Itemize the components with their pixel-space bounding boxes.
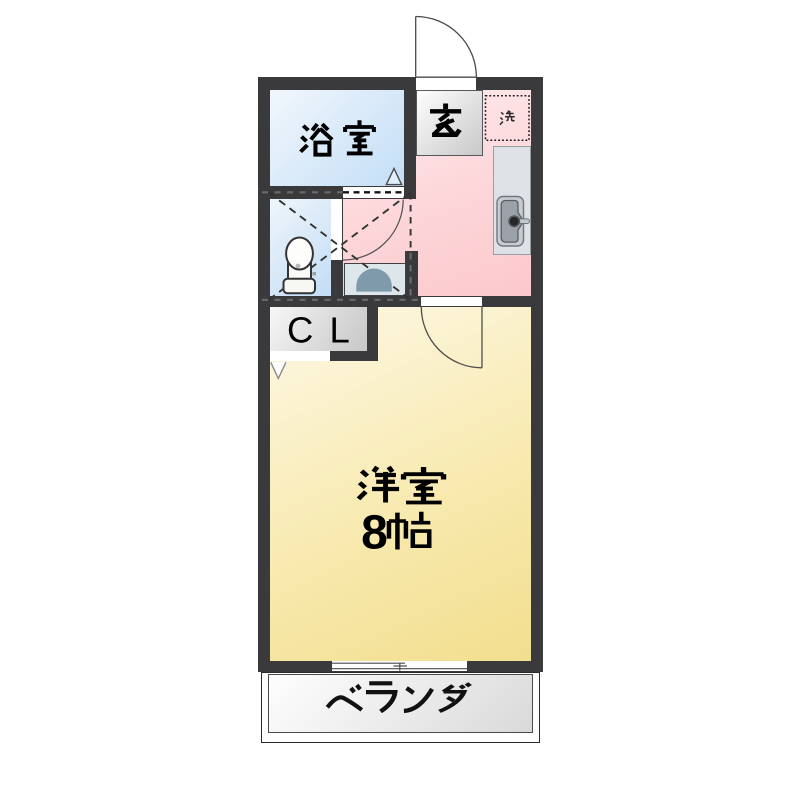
svg-text:8: 8: [361, 507, 388, 560]
svg-text:C L: C L: [287, 310, 353, 351]
